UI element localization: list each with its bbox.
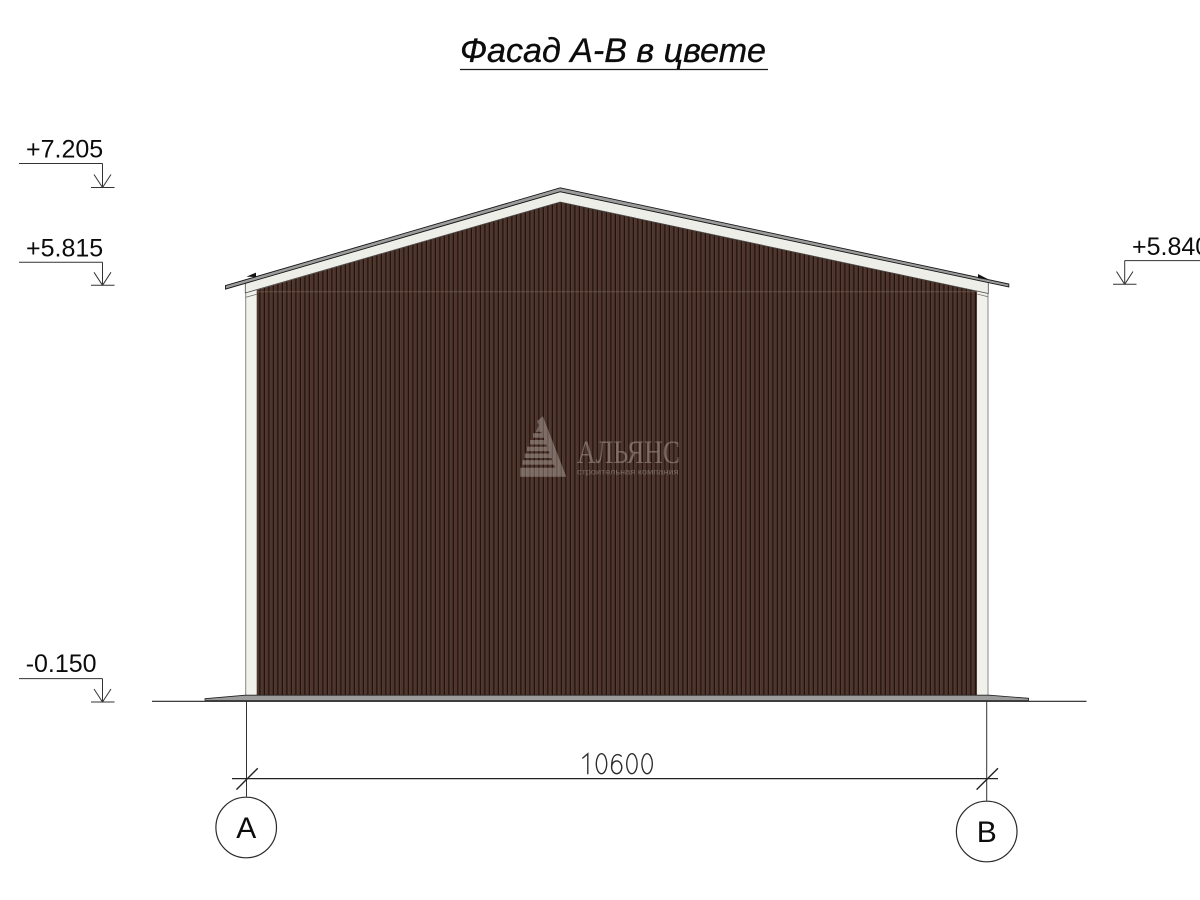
svg-text:B: B bbox=[977, 816, 997, 849]
svg-text:-0.150: -0.150 bbox=[26, 650, 97, 678]
svg-text:Фасад А-В в цвете: Фасад А-В в цвете bbox=[460, 32, 766, 70]
svg-text:АЛЬЯНС: АЛЬЯНС bbox=[577, 435, 680, 471]
svg-text:+5.815: +5.815 bbox=[26, 234, 103, 262]
svg-text:строительная компания: строительная компания bbox=[577, 468, 679, 477]
svg-text:A: A bbox=[236, 812, 256, 845]
svg-text:+5.840: +5.840 bbox=[1132, 233, 1200, 261]
svg-text:+7.205: +7.205 bbox=[26, 135, 103, 163]
